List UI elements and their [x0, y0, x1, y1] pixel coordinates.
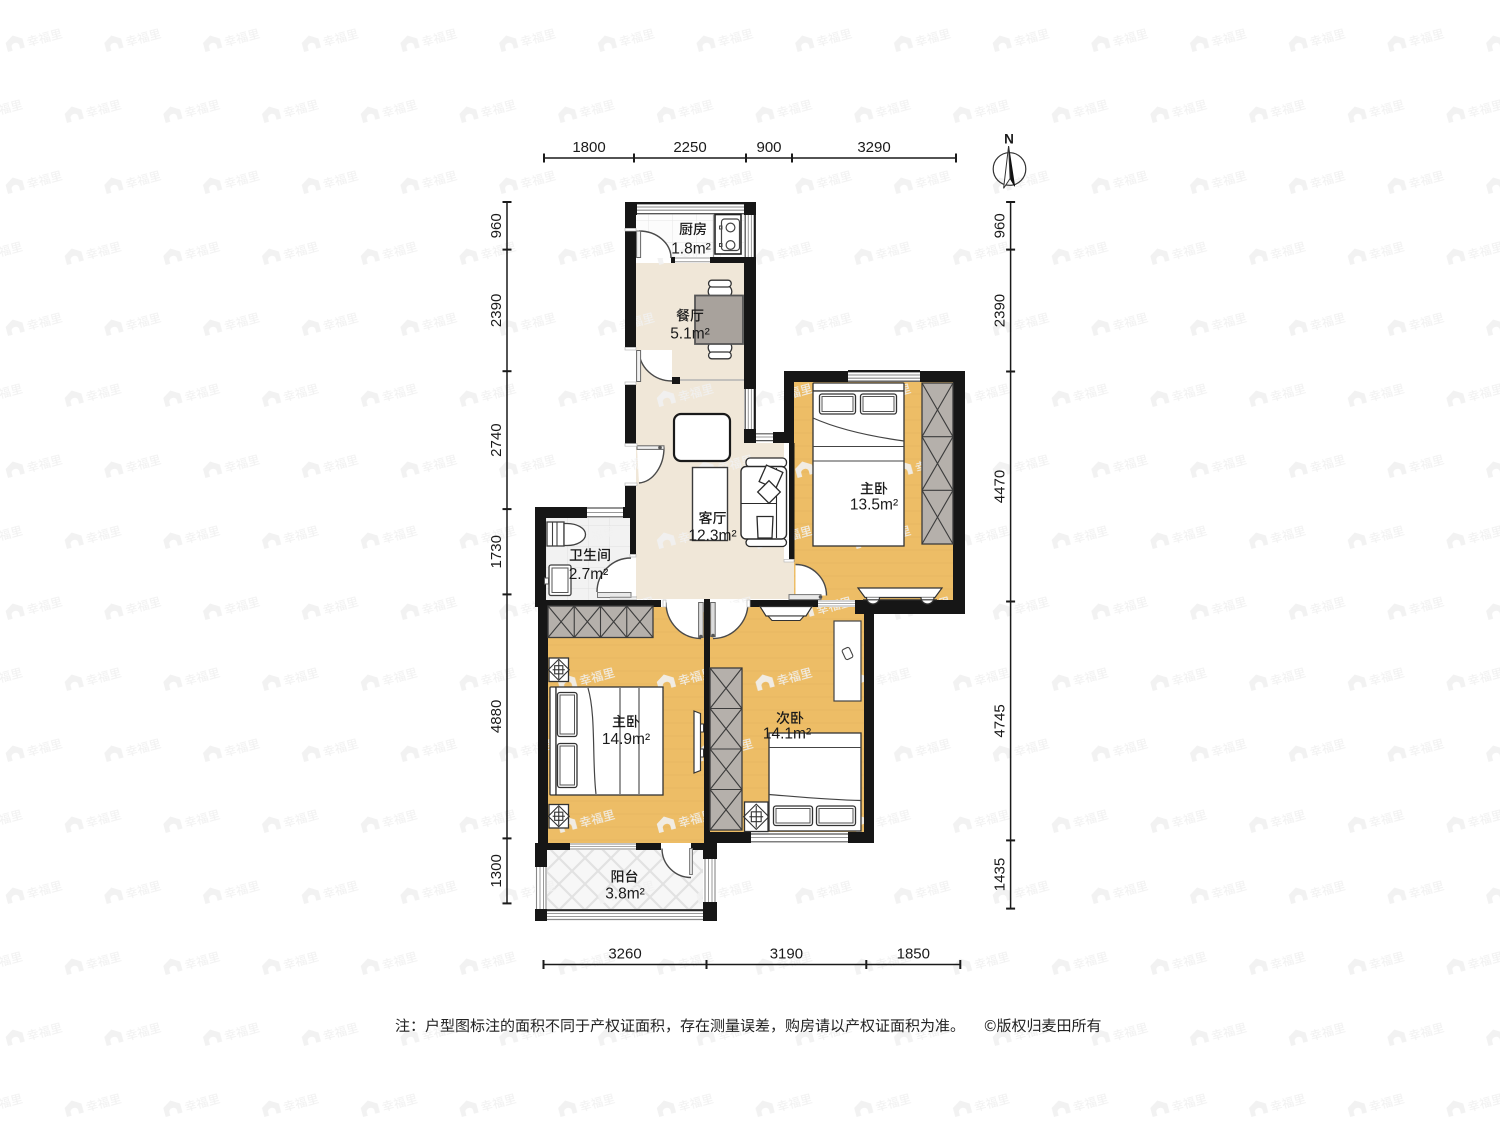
svg-text:12.3m²: 12.3m²: [688, 528, 736, 545]
svg-text:2250: 2250: [673, 139, 706, 156]
svg-text:1.8m²: 1.8m²: [671, 241, 711, 258]
svg-text:2390: 2390: [992, 294, 1009, 327]
svg-text:1300: 1300: [488, 854, 505, 887]
svg-text:960: 960: [488, 213, 505, 238]
svg-text:900: 900: [756, 139, 781, 156]
svg-text:3.8m²: 3.8m²: [605, 886, 645, 903]
svg-text:3190: 3190: [770, 946, 803, 963]
svg-text:5.1m²: 5.1m²: [670, 326, 710, 343]
svg-text:4470: 4470: [992, 470, 1009, 503]
svg-text:14.9m²: 14.9m²: [602, 731, 650, 748]
svg-text:4745: 4745: [992, 704, 1009, 737]
svg-text:14.1m²: 14.1m²: [763, 726, 811, 743]
svg-text:4880: 4880: [488, 700, 505, 733]
svg-text:3290: 3290: [857, 139, 890, 156]
svg-text:1850: 1850: [897, 946, 930, 963]
svg-text:2740: 2740: [488, 423, 505, 456]
svg-text:2.7m²: 2.7m²: [569, 566, 609, 583]
svg-text:N: N: [1004, 132, 1014, 147]
svg-text:1435: 1435: [992, 858, 1009, 891]
svg-text:960: 960: [992, 213, 1009, 238]
svg-text:2390: 2390: [488, 294, 505, 327]
svg-text:1730: 1730: [488, 535, 505, 568]
svg-text:1800: 1800: [572, 139, 605, 156]
svg-text:3260: 3260: [608, 946, 641, 963]
svg-text:13.5m²: 13.5m²: [850, 497, 898, 514]
